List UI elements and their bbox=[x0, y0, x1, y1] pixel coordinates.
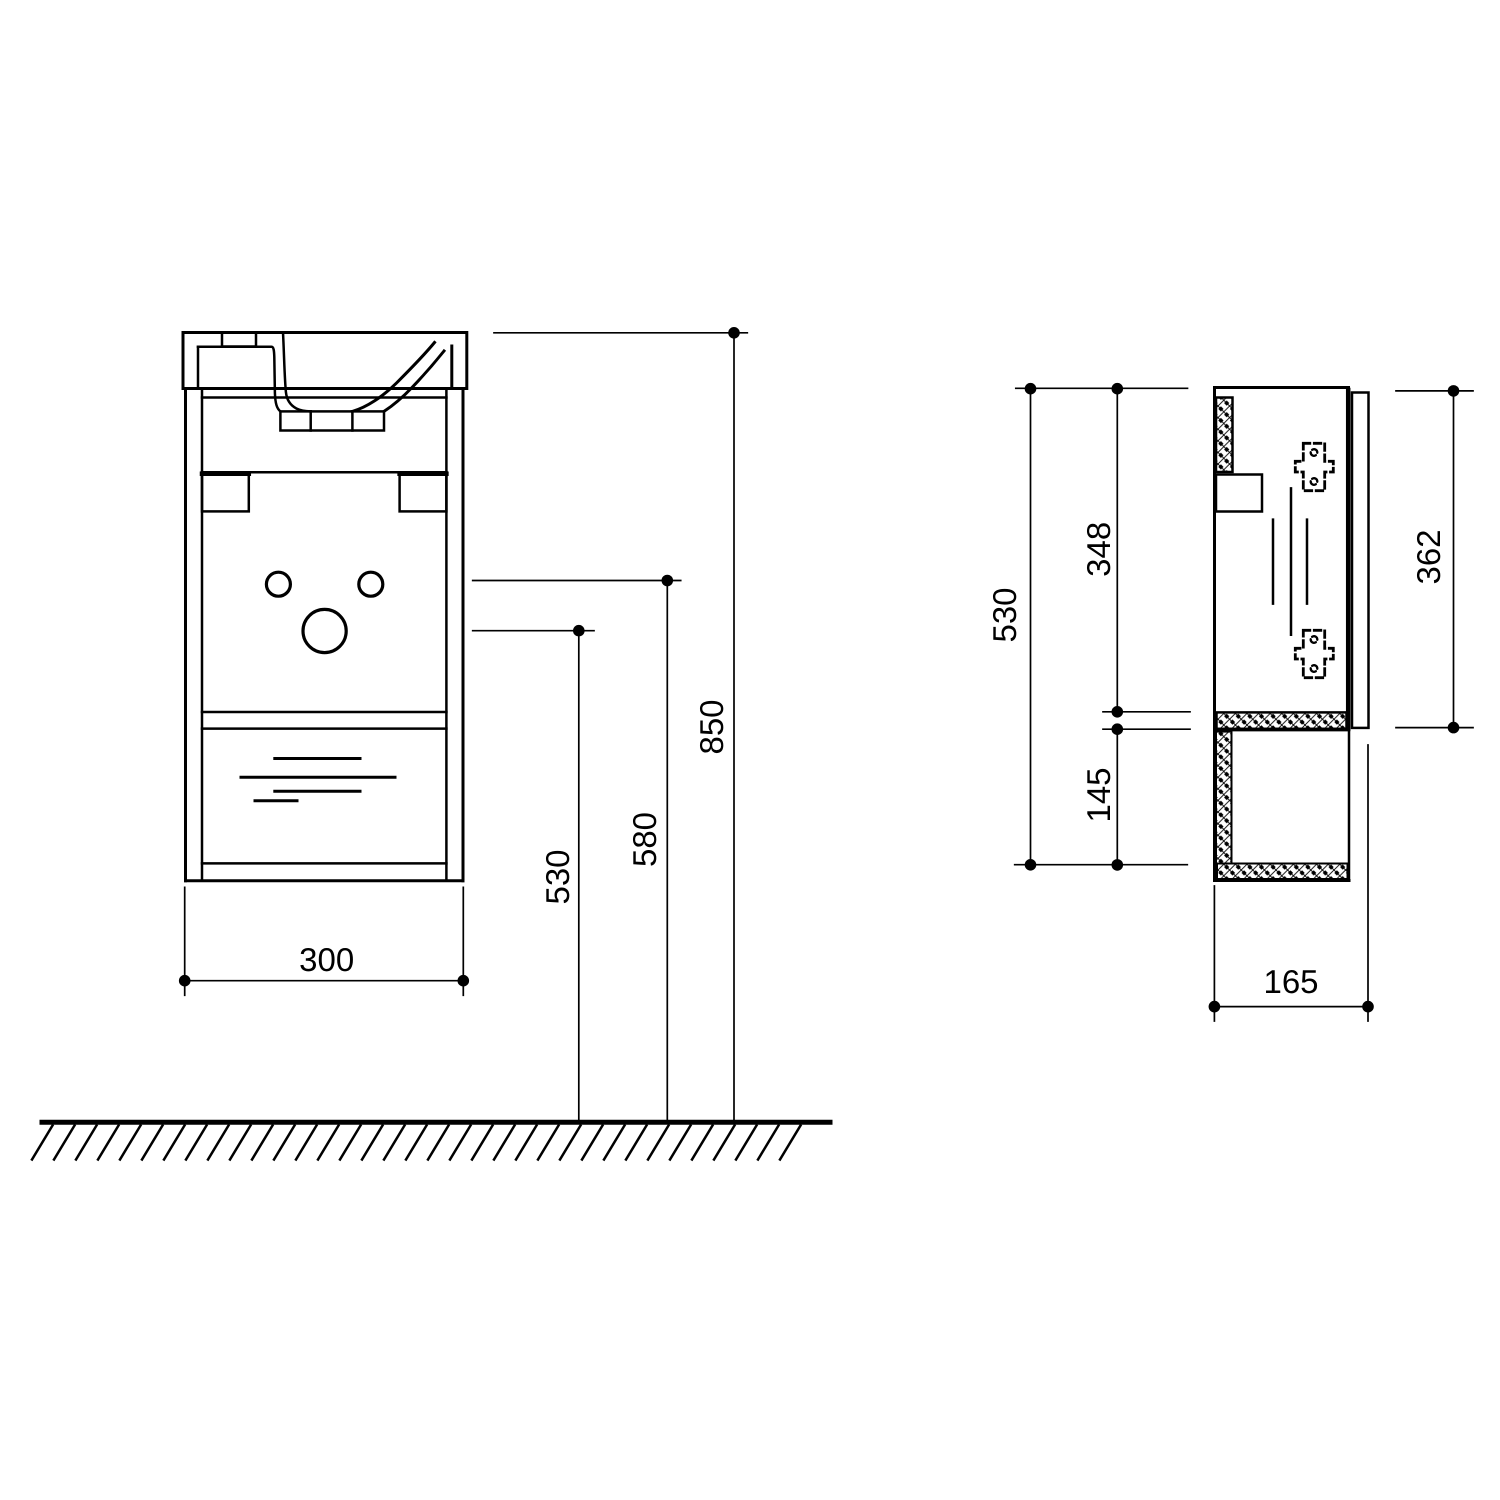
svg-text:530: 530 bbox=[986, 587, 1023, 642]
svg-text:530: 530 bbox=[539, 849, 576, 904]
svg-text:850: 850 bbox=[693, 699, 730, 754]
svg-text:348: 348 bbox=[1080, 522, 1117, 577]
svg-text:165: 165 bbox=[1263, 963, 1318, 1000]
svg-text:362: 362 bbox=[1410, 529, 1447, 584]
svg-text:580: 580 bbox=[626, 812, 663, 867]
svg-text:145: 145 bbox=[1080, 767, 1117, 822]
svg-text:300: 300 bbox=[299, 941, 354, 978]
